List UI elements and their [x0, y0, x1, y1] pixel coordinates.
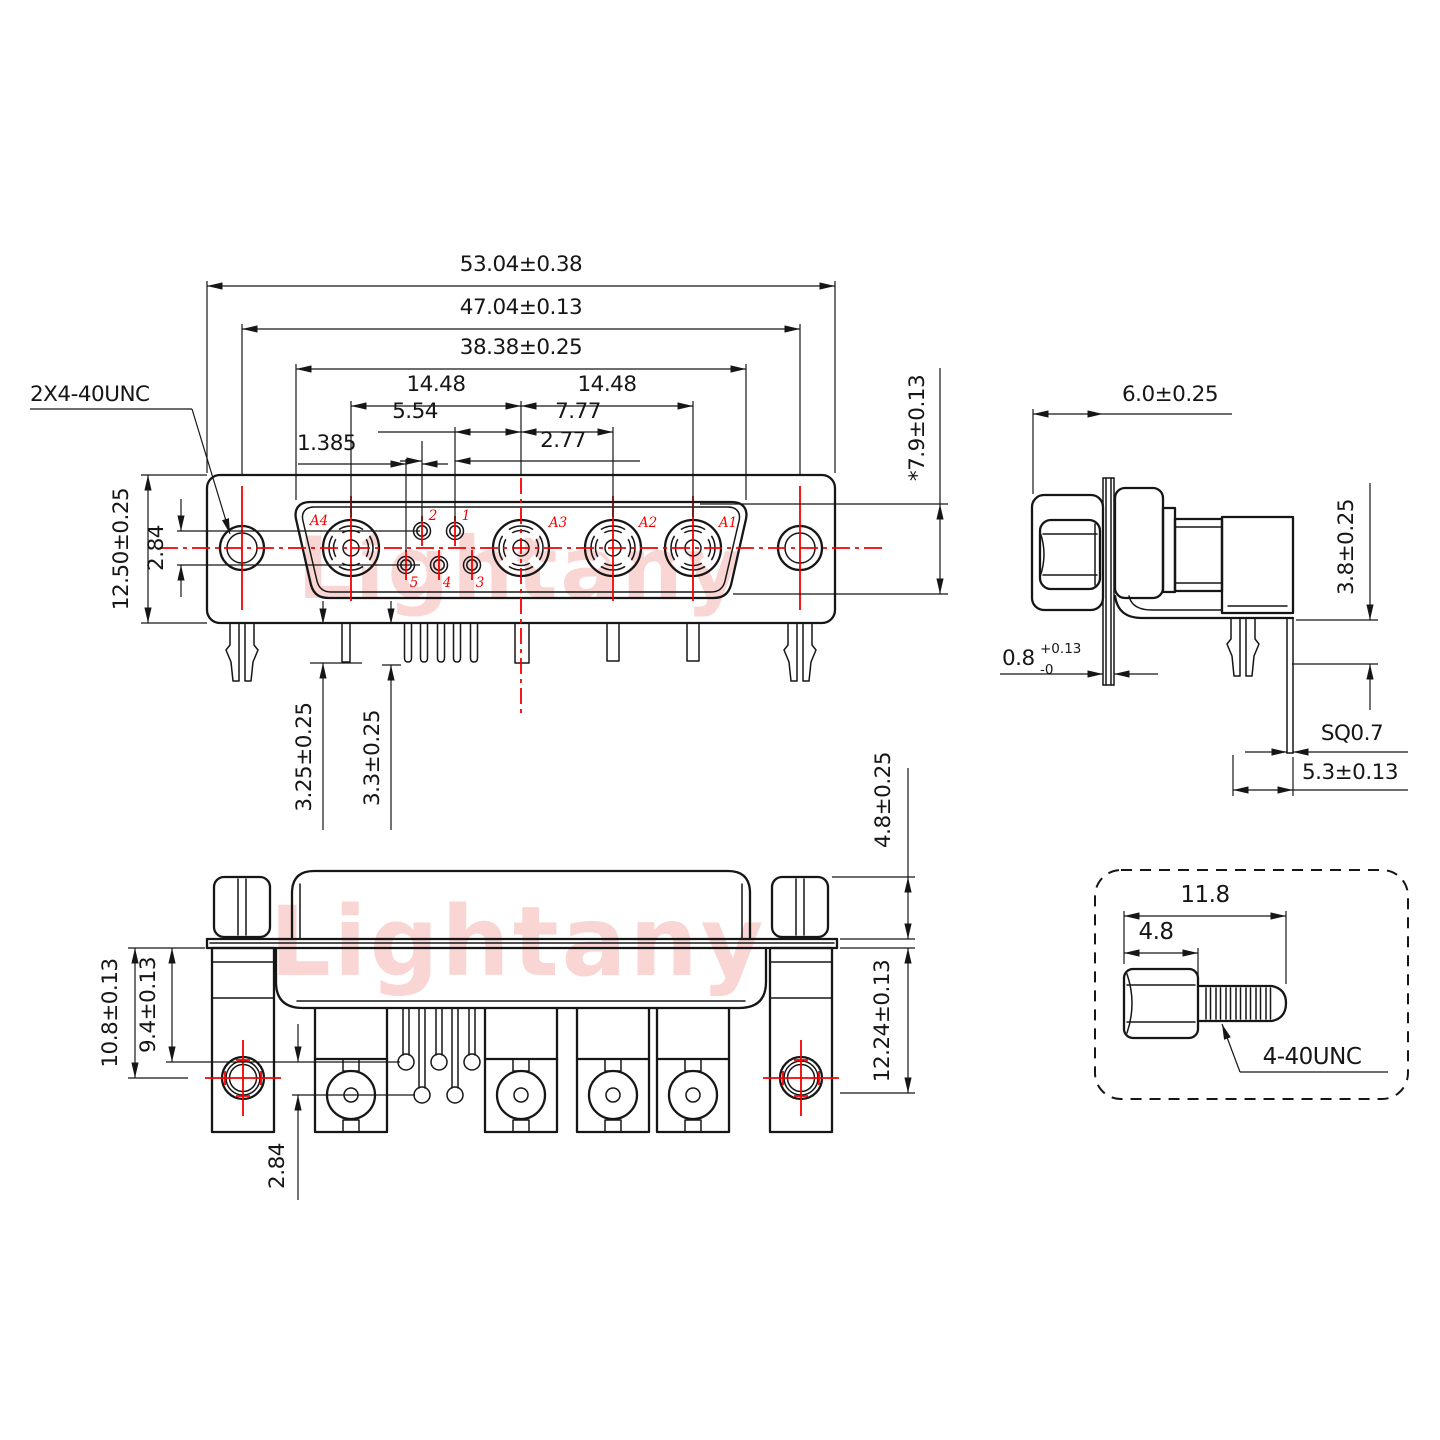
dim-tail-pitch: 5.3±0.13	[1302, 760, 1398, 785]
pin-label-3: 3	[476, 575, 485, 591]
pin-label-2: 2	[428, 508, 438, 524]
dim-screw-head: 4.8	[1138, 919, 1173, 945]
dim-row-stagger: 1.385	[297, 431, 356, 456]
dim-overall-width: 53.04±0.38	[460, 252, 582, 277]
dim-tail-plane: 12.24±0.13	[870, 960, 895, 1082]
side-flange	[1103, 478, 1114, 685]
label-thread-note: 2X4-40UNC	[30, 382, 150, 407]
screw-body	[1124, 969, 1286, 1038]
rear-bracket-right	[763, 948, 839, 1132]
screw-detail-view: 11.8 4.8 4-40UNC	[1095, 870, 1408, 1099]
contact-label-a4: A4	[308, 513, 328, 529]
dim-mount-span: 47.04±0.13	[460, 295, 582, 320]
dim-flange-sub: -0	[1040, 662, 1053, 678]
dim-pitch-right: 14.48	[577, 372, 636, 397]
rear-coax-blocks	[315, 1008, 729, 1132]
dim-screw-total: 11.8	[1180, 882, 1229, 908]
dim-pitch-left: 14.48	[406, 372, 465, 397]
dim-pin-row: 9.4±0.13	[136, 957, 161, 1053]
dim-cutout-width: 38.38±0.25	[460, 335, 582, 360]
dim-flange-val: 0.8	[1002, 646, 1035, 671]
side-body-block	[1115, 488, 1163, 598]
side-view: 6.0±0.25 0.8 +0.13 -0 3.8±0.25 SQ0.7 5.3…	[1000, 382, 1408, 796]
side-body-step	[1163, 508, 1175, 592]
label-screw-thread: 4-40UNC	[1263, 1044, 1362, 1070]
watermark-rear: Lightany	[270, 886, 767, 998]
rear-pin-tails	[398, 1008, 480, 1103]
side-coax-body	[1222, 517, 1293, 613]
side-barrel	[1175, 519, 1222, 591]
screw-hex-head	[1124, 969, 1198, 1038]
screw-thread-callout: 4-40UNC	[1222, 1024, 1388, 1072]
dim-standoff: 3.8±0.25	[1334, 499, 1359, 595]
rear-coax-a2	[577, 1008, 649, 1132]
watermarks: Lightany Lightany	[270, 519, 767, 998]
dim-pin-square: SQ0.7	[1321, 721, 1383, 746]
dim-pin-to-center: 5.54	[392, 399, 438, 424]
technical-drawing: Lightany Lightany	[0, 0, 1440, 1440]
rear-nut-right	[772, 877, 828, 937]
side-square-pin	[1287, 618, 1293, 753]
contact-label-a3: A3	[547, 515, 567, 531]
side-jackscrew-nut	[1040, 520, 1100, 589]
contact-label-a2: A2	[637, 515, 657, 531]
dim-mount-center: 10.8±0.13	[98, 958, 123, 1067]
contact-label-a1: A1	[717, 515, 737, 531]
rear-coax-a1	[657, 1008, 729, 1132]
side-front-shell	[1032, 495, 1103, 610]
dim-flange-sup: +0.13	[1040, 641, 1081, 657]
side-bracket	[1115, 596, 1293, 618]
dim-center-to-a2: 7.77	[555, 399, 601, 424]
dim-rear-row-gap: 2.84	[265, 1143, 290, 1189]
rear-coax-a4	[315, 1008, 387, 1132]
pin-label-4: 4	[442, 575, 452, 591]
dim-leg-b: 3.3±0.25	[360, 710, 385, 806]
dim-cutout-height: *7.9±0.13	[905, 375, 930, 481]
dim-nut-height: 4.8±0.25	[871, 752, 896, 848]
drawing-page: Lightany Lightany	[0, 0, 1440, 1440]
side-snap-leg	[1227, 618, 1259, 676]
dim-body-height: 12.50±0.25	[109, 488, 134, 610]
screw-threads	[1206, 988, 1271, 1019]
dim-leg-a: 3.25±0.25	[292, 702, 317, 811]
dim-front-depth: 6.0±0.25	[1122, 382, 1218, 407]
dim-pin-pitch: 2.77	[540, 428, 586, 453]
pin-label-1: 1	[462, 508, 471, 524]
rear-coax-a3	[485, 1008, 557, 1132]
rear-nut-left	[214, 877, 270, 937]
dim-row-gap: 2.84	[144, 525, 169, 571]
pin-label-5: 5	[410, 575, 419, 591]
